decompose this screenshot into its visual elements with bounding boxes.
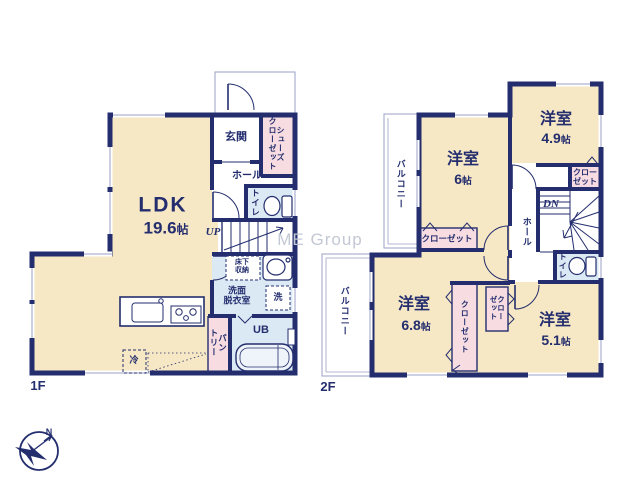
label-underfloor-line1: 床下 [235, 259, 249, 267]
porch-1f [215, 72, 295, 115]
compass-north-label: N [46, 428, 53, 438]
room-size-2f-6-unit: 帖 [462, 176, 472, 187]
label-closet-room51-line2: ゼット [490, 295, 498, 321]
room-size-2f-6-value: 6 [454, 171, 462, 187]
label-underfloor-line2: 収納 [235, 267, 249, 275]
room-size-ldk-value: 19.6 [144, 219, 177, 238]
room-size-ldk: 19.6帖 [144, 220, 189, 239]
label-genkan: 玄関 [225, 131, 247, 143]
label-shoes-closet-line2: クローゼット [268, 117, 276, 171]
floor-label-1f: 1F [30, 379, 45, 393]
room-size-2f-51-value: 5.1 [541, 332, 560, 348]
room-size-2f-51-unit: 帖 [561, 337, 571, 348]
floor-label-2f: 2F [320, 380, 335, 394]
label-closet-room51-line1: クロー [497, 295, 505, 321]
room-size-2f-68-value: 6.8 [401, 317, 420, 333]
label-washroom-line2: 脱衣室 [223, 296, 250, 306]
label-washroom: 洗面脱衣室 [223, 286, 250, 307]
label-toilet-2f: トイレ [558, 253, 566, 280]
label-closet-room6: クローゼット [421, 234, 472, 243]
label-shoes-closet: シューズクローゼット [268, 117, 284, 171]
label-closet-room49: クローゼット [573, 168, 597, 186]
label-stairs-up: UP [206, 226, 221, 238]
label-pantry-line2: トリー [210, 329, 219, 358]
floor-plan-page: ME Group LDK 19.6帖 玄関 シューズクローゼット ホール トイレ… [0, 0, 640, 480]
label-balcony-upper: バルコニー [395, 159, 404, 209]
label-closet-room49-line2: ゼット [573, 177, 597, 186]
room-size-2f-6: 6帖 [454, 172, 472, 188]
room-size-2f-49-unit: 帖 [561, 135, 571, 146]
label-hall-1f: ホール [232, 171, 262, 182]
room-size-2f-68: 6.8帖 [401, 318, 430, 334]
label-hall-2f: ホール [521, 217, 530, 247]
label-toilet-1f: トイレ [251, 189, 260, 218]
room-size-2f-68-unit: 帖 [421, 322, 431, 333]
room-label-2f-6: 洋室 [447, 151, 479, 169]
label-washroom-line1: 洗面 [223, 286, 250, 296]
label-underfloor-storage: 床下収納 [235, 259, 249, 275]
label-closet-room49-line1: クロー [573, 168, 597, 177]
room-size-2f-49-value: 4.9 [541, 130, 560, 146]
room-label-ldk: LDK [138, 193, 187, 216]
label-fridge: 冷 [129, 356, 138, 366]
label-closet-room51: クローゼット [490, 295, 505, 321]
bath-fixture [288, 329, 295, 345]
label-pantry: パントリー [210, 329, 227, 358]
room-size-2f-51: 5.1帖 [541, 333, 570, 349]
washbasin-icon [263, 255, 292, 280]
label-balcony-lower: バルコニー [339, 286, 348, 336]
label-pantry-line1: パン [218, 329, 227, 358]
room-label-2f-51: 洋室 [539, 312, 571, 330]
label-washer: 洗 [273, 293, 282, 303]
room-label-2f-49: 洋室 [540, 111, 572, 129]
kitchen-counter [120, 297, 204, 326]
watermark: ME Group [277, 230, 362, 250]
label-shoes-closet-line1: シューズ [276, 117, 284, 171]
label-unit-bath: UB [253, 324, 269, 336]
room-label-2f-68: 洋室 [398, 296, 430, 314]
label-closet-room68: クローゼット [460, 300, 468, 354]
room-size-ldk-unit: 帖 [177, 223, 189, 237]
bathtub-icon [236, 344, 293, 371]
label-stairs-dn: DN [543, 198, 559, 210]
room-size-2f-49: 4.9帖 [541, 131, 570, 147]
